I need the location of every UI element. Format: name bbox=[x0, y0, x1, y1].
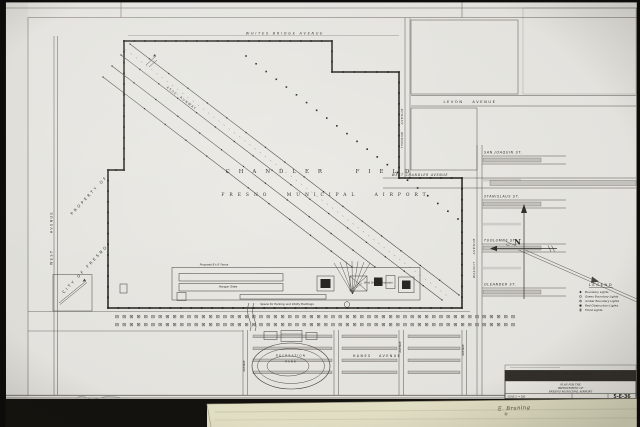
blueprint-photo: LEGEND Boundary Lights Green Boundary Li… bbox=[0, 0, 640, 427]
photo-overlays bbox=[0, 0, 640, 427]
airport-plan-drawing: LEGEND Boundary Lights Green Boundary Li… bbox=[0, 0, 640, 427]
